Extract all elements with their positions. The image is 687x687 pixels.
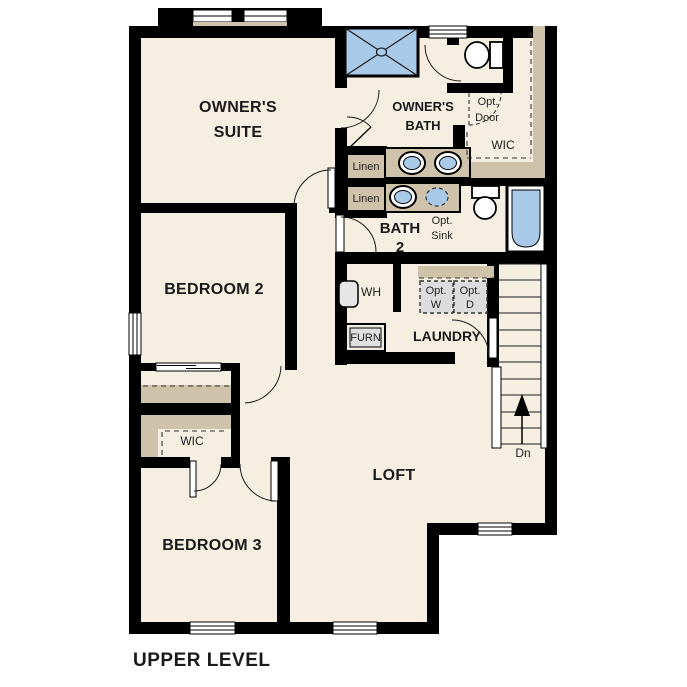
- shower: [345, 28, 418, 76]
- opt-washer-label-2: W: [431, 299, 442, 311]
- water-heater-label: WH: [361, 285, 381, 299]
- floor-plan-page: OWNER'S SUITE OWNER'S BATH Opt. Door WIC…: [0, 0, 687, 687]
- wall-laundry-bottom: [335, 352, 455, 364]
- wall-bottom-exterior: [129, 622, 439, 634]
- opt-sink-label-1: Opt.: [432, 215, 453, 227]
- owners-suite-label-1: OWNER'S: [199, 99, 277, 116]
- laundry-label: LAUNDRY: [413, 328, 482, 344]
- toilet-bath2-bowl: [474, 197, 496, 219]
- tub-basin: [512, 190, 540, 247]
- plan-title: UPPER LEVEL: [133, 650, 270, 671]
- wall-bedroom2-right: [285, 203, 297, 370]
- wall-linen-top: [335, 146, 387, 154]
- wall-toilet-nook-bottom: [447, 83, 513, 93]
- bath2-label-2: 2: [396, 239, 404, 256]
- stair-rail-left: [492, 367, 501, 448]
- toilet-owners-tank: [490, 42, 503, 68]
- opt-washer-label-1: Opt.: [426, 285, 447, 297]
- owners-suite-label-2: SUITE: [214, 124, 263, 141]
- wic-owners-shelf-bottom: [465, 162, 545, 178]
- floor-plan-drawing: OWNER'S SUITE OWNER'S BATH Opt. Door WIC…: [0, 0, 687, 687]
- laundry-door-leaf: [489, 318, 497, 358]
- bedroom3-label: BEDROOM 3: [162, 537, 262, 554]
- wall-suite-bottom: [141, 203, 296, 213]
- loft-label: LOFT: [373, 467, 416, 484]
- window-top: [429, 26, 467, 38]
- wall-baths-bottom: [335, 252, 557, 264]
- closet-bypass-door: [156, 363, 221, 371]
- wic-owners-shelf-right: [533, 26, 545, 178]
- bedroom3-door-leaf: [271, 461, 278, 501]
- opt-door-label-1: Opt.: [478, 96, 499, 108]
- opt-dryer-label-2: D: [466, 299, 474, 311]
- toilet-bath2: [472, 186, 499, 219]
- owners-bath-label-2: BATH: [405, 118, 440, 133]
- wic-owners-label: WIC: [491, 138, 515, 152]
- laundry-shelf: [418, 266, 494, 278]
- window-loft-bottom: [478, 523, 512, 535]
- bedroom2-label: BEDROOM 2: [164, 281, 264, 298]
- opt-sink-label-2: Sink: [431, 230, 453, 242]
- wic-bedroom3-label: WIC: [180, 434, 204, 448]
- owners-bath-label-1: OWNER'S: [392, 99, 454, 114]
- sink-bath2-basin: [395, 191, 412, 204]
- wall-step: [427, 523, 439, 634]
- wall-wh-closet-divider: [393, 264, 401, 312]
- wall-bedroom3-right: [277, 457, 290, 622]
- wall-closet-wic-divider: [141, 403, 240, 415]
- opening-owners-bath-door: [335, 88, 347, 128]
- toilet-owners: [465, 42, 503, 68]
- toilet-owners-bowl: [465, 42, 489, 68]
- wic3-shelf-top: [141, 415, 231, 429]
- bath2-door-leaf: [336, 215, 344, 252]
- wall-closet-left: [141, 363, 156, 371]
- stairs-down-label: Dn: [515, 446, 530, 460]
- bedroom2-closet-shelf: [141, 385, 231, 403]
- wic3-door-leaf: [190, 461, 196, 497]
- sink-owners-1-basin: [404, 157, 421, 170]
- water-heater: [339, 281, 358, 307]
- window-left: [129, 313, 141, 355]
- linen2-label: Linen: [353, 193, 380, 205]
- bathtub: [507, 185, 545, 252]
- linen1-label: Linen: [353, 161, 380, 173]
- bath2-label-1: BATH: [380, 220, 421, 237]
- owners-suite-door-leaf: [328, 168, 335, 208]
- wall-bedroom3-top-block: [221, 457, 240, 468]
- window-loftcorridor-bottom: [333, 622, 377, 634]
- window-bedroom3-bottom: [190, 622, 235, 634]
- shower-drain: [377, 48, 387, 56]
- wall-toilet-nook-right: [503, 26, 513, 83]
- sink-bath2-optional: [426, 188, 448, 206]
- opt-dryer-label-1: Opt.: [460, 285, 481, 297]
- furnace-label: FURN: [350, 332, 381, 344]
- sink-owners-2-basin: [440, 157, 457, 170]
- wall-wic3-bottom: [129, 457, 190, 468]
- opt-door-label-2: Door: [475, 112, 499, 124]
- stair-rail-right: [541, 264, 547, 448]
